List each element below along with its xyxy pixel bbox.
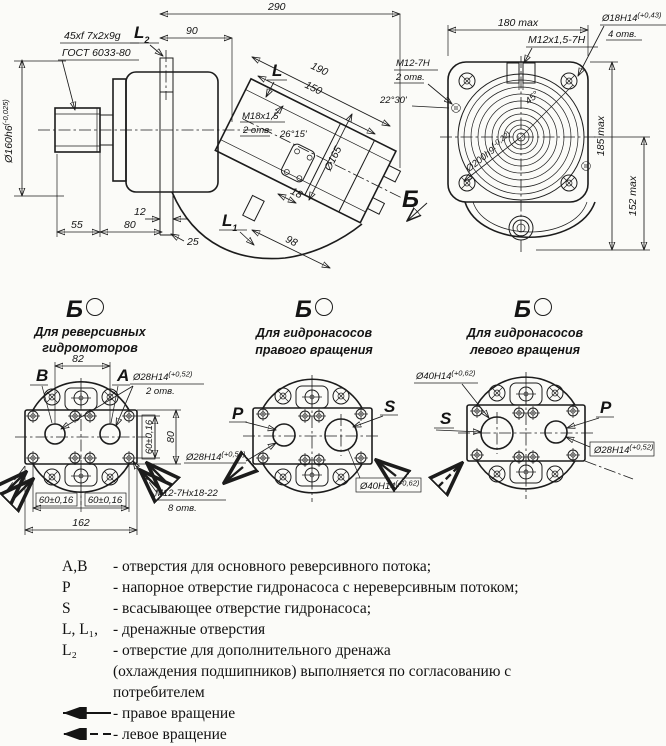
dim-dia160: Ø160h6(-0,025) <box>1 99 15 164</box>
dim-55: 55 <box>71 219 83 231</box>
valve-stud <box>367 198 384 215</box>
legend-text: - правое вращение <box>113 703 235 724</box>
dia28-label-b3: Ø28H14(+0,52) <box>593 443 654 457</box>
legend-text: - левое вращение <box>113 724 227 745</box>
angled-housing <box>215 79 407 229</box>
dia28-label-b1: Ø28H14(+0,52) <box>132 370 193 384</box>
dia28-qty-b1: 2 отв. <box>145 386 175 397</box>
dim-90: 90 <box>186 25 198 37</box>
m12-hole <box>582 162 591 171</box>
left-rotation-arrow <box>438 463 462 487</box>
svg-text:правого вращения: правого вращения <box>255 343 373 357</box>
label-l2: L2 <box>134 23 149 45</box>
legend-symbol: L, L₁, <box>62 619 113 640</box>
dim-98: 98 <box>283 233 299 249</box>
legend-text: - отверстия для основного реверсивного п… <box>113 556 431 577</box>
legend-symbol: Р <box>62 577 113 598</box>
port-s-label: S <box>440 409 452 428</box>
dim-80: 80 <box>124 219 136 231</box>
legend-symbol: А,В <box>62 556 113 577</box>
view-b-arrow-label: Б <box>402 186 419 213</box>
dim-185max: 185 max <box>595 115 607 156</box>
legend-row: потребителем <box>0 682 666 703</box>
legend-row-left-rotation: - левое вращение <box>0 724 666 745</box>
gost-callout: ГОСТ 6033-80 <box>62 47 131 59</box>
valve-stud <box>383 165 400 182</box>
front-view: 45° Ø200h9(-0,22) 180 max M12x1,5-7H <box>379 11 666 253</box>
legend-text: - напорное отверстие гидронасоса с нерев… <box>113 577 519 598</box>
view-b2-caption: Для гидронасосов <box>255 326 373 340</box>
corner-hole <box>459 73 475 89</box>
bell-housing <box>172 192 362 259</box>
m12-7h-qty: 2 отв. <box>395 72 425 83</box>
right-rotation-arrow <box>376 460 396 476</box>
legend-row: Р- напорное отверстие гидронасоса с нере… <box>0 577 666 598</box>
view-b1-header-circle <box>87 299 104 316</box>
port-p-label: P <box>232 404 244 423</box>
dia40-label-b2: Ø40H14(+0,62) <box>359 479 420 493</box>
right-rotation-arrow <box>224 467 243 483</box>
legend-text: потребителем <box>113 682 205 703</box>
legend-row: S- всасывающее отверстие гидронасоса; <box>0 598 666 619</box>
view-b2-header-circle <box>316 299 333 316</box>
dim-60b: 60±0,16 <box>88 495 123 506</box>
m12-thread-qty: 8 отв. <box>168 503 197 514</box>
dia40-label-b3: Ø40H14(+0,62) <box>415 369 476 383</box>
legend-row: А,В- отверстия для основного реверсивног… <box>0 556 666 577</box>
legend-text: - отверстие для дополнительного дренажа <box>113 640 391 661</box>
dim-150: 150 <box>303 79 324 98</box>
port-b-label: B <box>36 366 48 385</box>
dimensions-front: 180 max M12x1,5-7H Ø18H14(+0,43) 4 отв. … <box>379 11 666 251</box>
view-b1-header: Б <box>66 296 83 323</box>
spline-callout: 45xf 7x2x9g <box>64 30 121 42</box>
view-b2-right-rotation: Б Для гидронасосов правого вращения P S … <box>184 296 421 502</box>
view-b1-caption: Для реверсивных <box>33 325 146 339</box>
svg-text:гидромоторов: гидромоторов <box>42 341 138 355</box>
dim-290: 290 <box>267 1 286 13</box>
legend-symbol: L₂ <box>62 640 113 661</box>
view-b1-reversible: Б Для реверсивных гидромоторов B A 82 Ø2… <box>4 296 226 535</box>
view-b3-header: Б <box>514 296 531 323</box>
dim-180max: 180 max <box>498 17 539 29</box>
label-l: L <box>272 61 282 80</box>
port-a <box>100 424 120 444</box>
dim-190: 190 <box>309 60 330 79</box>
mounting-pad <box>280 142 317 183</box>
port-b <box>45 424 65 444</box>
legend: А,В- отверстия для основного реверсивног… <box>0 556 666 745</box>
port-p <box>273 424 295 446</box>
l1-drain-plug <box>243 195 264 220</box>
legend-row: (охлаждения подшипников) выполняется по … <box>0 661 666 682</box>
dia18-label: Ø18H14(+0,43) <box>601 11 662 25</box>
dia18-qty: 4 отв. <box>608 29 637 40</box>
l2-drain-plug <box>160 58 173 92</box>
m12-thread-label: M12-7Hx18-22 <box>155 488 219 499</box>
view-b3-left-rotation: Б Для гидронасосов левого вращения S P Ø… <box>414 296 654 499</box>
port-a-label: A <box>116 366 129 385</box>
dim-60a: 60±0,16 <box>39 495 74 506</box>
m18-qty: 2 отв. <box>242 125 272 136</box>
dim-dia165: Ø165 <box>322 144 345 173</box>
dim-82: 82 <box>72 353 84 365</box>
view-b2-header: Б <box>295 296 312 323</box>
port-p <box>545 421 567 443</box>
view-b3-caption: Для гидронасосов <box>466 326 584 340</box>
dia28-label-b2: Ø28H14(+0,52) <box>185 450 246 464</box>
angle-22-30: 22°30' <box>379 95 408 106</box>
legend-row: L₂- отверстие для дополнительного дренаж… <box>0 640 666 661</box>
port-p-label: P <box>600 398 612 417</box>
solid-left-arrow-icon <box>55 704 113 725</box>
drain-band <box>160 50 173 235</box>
legend-text: - всасывающее отверстие гидронасоса; <box>113 598 371 619</box>
legend-row: L, L₁,- дренажные отверстия <box>0 619 666 640</box>
m12x15-label: M12x1,5-7H <box>528 34 586 46</box>
dashed-left-arrow-icon <box>55 725 113 746</box>
port-s-label: S <box>384 397 396 416</box>
dim-60v: 60±0,16 <box>144 419 155 454</box>
legend-symbol: S <box>62 598 113 619</box>
angle-26-15: 26°15' <box>279 129 308 140</box>
side-view: 290 90 L2 45xf 7x2x9g ГОСТ 6033-80 Ø160h… <box>1 1 427 268</box>
dim-25: 25 <box>186 236 199 248</box>
dim-dia200: Ø200h9(-0,22) <box>462 129 516 175</box>
view-b3-header-circle <box>535 299 552 316</box>
technical-drawing: 290 90 L2 45xf 7x2x9g ГОСТ 6033-80 Ø160h… <box>0 0 666 556</box>
dim-152max: 152 max <box>627 175 639 216</box>
legend-text: - дренажные отверстия <box>113 619 265 640</box>
legend-text: (охлаждения подшипников) выполняется по … <box>113 661 511 682</box>
motor-body <box>126 72 218 192</box>
corner-hole <box>561 73 577 89</box>
dim-162: 162 <box>72 517 90 529</box>
angle-45: 45° <box>523 89 541 107</box>
m12-hole <box>452 104 461 113</box>
legend-row-right-rotation: - правое вращение <box>0 703 666 724</box>
dim-80-b1: 80 <box>165 431 177 443</box>
m12-7h-label: M12-7H <box>396 58 430 69</box>
svg-text:левого вращения: левого вращения <box>469 343 581 357</box>
dim-12: 12 <box>134 206 146 218</box>
